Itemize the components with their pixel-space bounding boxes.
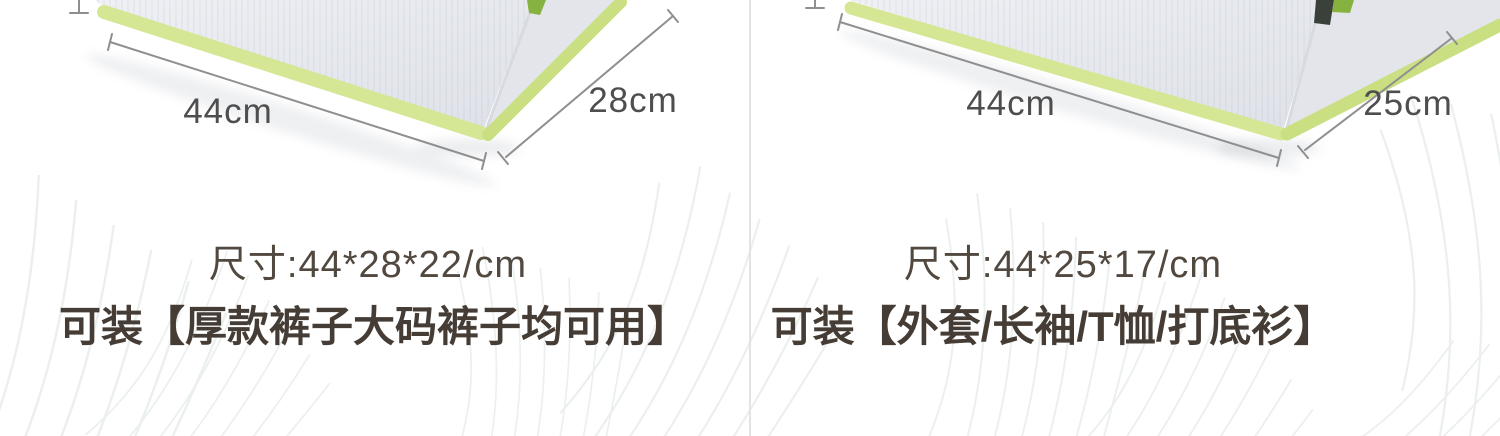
size-text: 尺寸:44*25*17/cm [904,246,1222,284]
box-front-shading [95,0,534,128]
height-dimension-tick [70,0,88,13]
capacity-text: 可装【厚款裤子大码裤子均可用】 [59,306,689,348]
capacity-text: 可装【外套/长袖/T恤/打底衫】 [771,306,1336,348]
depth-dimension-label: 28cm [588,81,678,121]
product-size-section: 44cm 28cm 尺寸:44*28*22/cm 可装【厚款裤子大码裤子均可用】 [0,0,1500,436]
height-dimension-tick [806,0,824,8]
size-text: 尺寸:44*28*22/cm [209,246,527,284]
panel-divider [749,0,751,436]
storage-box-photo-right [750,0,1500,436]
width-dimension-label: 44cm [966,84,1056,124]
storage-box-photo-left [0,0,750,436]
depth-dimension-label: 25cm [1363,84,1453,124]
width-dimension-label: 44cm [183,92,273,132]
product-spec-panel-right: 44cm 25cm 尺寸:44*25*17/cm 可装【外套/长袖/T恤/打底衫… [750,0,1500,436]
product-spec-panel-left: 44cm 28cm 尺寸:44*28*22/cm 可装【厚款裤子大码裤子均可用】 [0,0,750,436]
